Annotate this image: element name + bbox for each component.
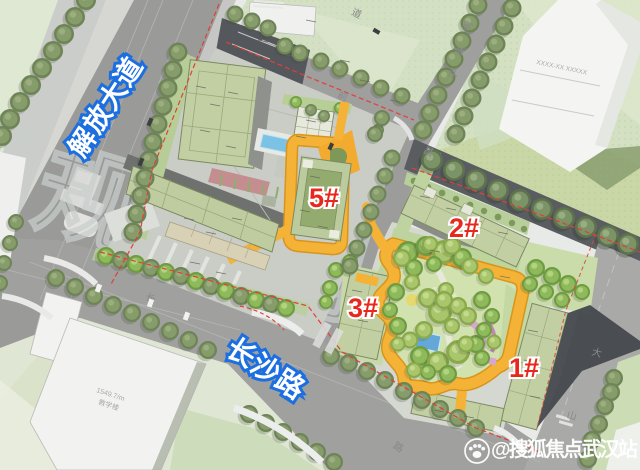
svg-text:3#: 3# [348,293,378,323]
svg-text:@搜狐焦点武汉站: @搜狐焦点武汉站 [491,437,638,461]
svg-text:5#: 5# [309,183,339,213]
svg-text:1#: 1# [509,353,539,383]
svg-text:2#: 2# [449,213,479,243]
